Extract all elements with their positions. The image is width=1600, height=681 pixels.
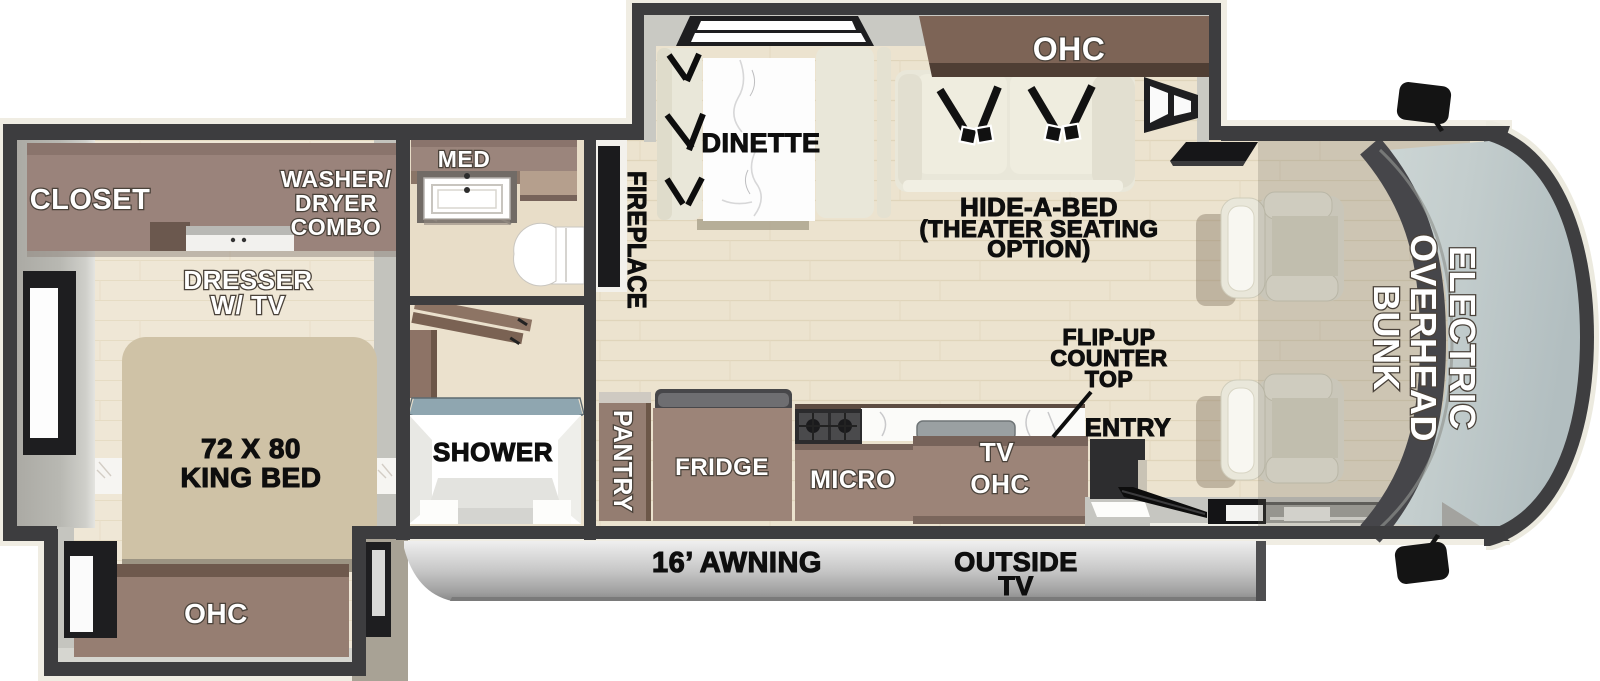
svg-text:DINETTE: DINETTE [701, 128, 820, 158]
svg-text:PANTRY: PANTRY [608, 410, 638, 512]
svg-text:MED: MED [438, 146, 491, 172]
svg-text:SHOWER: SHOWER [433, 437, 553, 467]
svg-text:72 X 80: 72 X 80 [201, 433, 301, 464]
svg-text:16’ AWNING: 16’ AWNING [652, 547, 822, 579]
svg-text:OHC: OHC [970, 469, 1029, 499]
svg-text:CLOSET: CLOSET [30, 184, 151, 216]
svg-text:OHC: OHC [184, 598, 248, 629]
svg-text:COMBO: COMBO [291, 214, 382, 240]
svg-text:FIREPLACE: FIREPLACE [622, 171, 652, 309]
svg-text:OVERHEAD: OVERHEAD [1403, 234, 1444, 442]
svg-text:MICRO: MICRO [810, 466, 896, 494]
svg-text:BUNK: BUNK [1366, 285, 1407, 391]
svg-text:ENTRY: ENTRY [1085, 414, 1171, 442]
svg-text:ELECTRIC: ELECTRIC [1442, 246, 1483, 430]
svg-text:WASHER/: WASHER/ [281, 166, 392, 192]
svg-text:TV: TV [998, 571, 1034, 601]
svg-text:OPTION): OPTION) [987, 236, 1091, 263]
svg-text:TV: TV [980, 437, 1014, 467]
svg-text:W/ TV: W/ TV [211, 290, 286, 320]
svg-text:FRIDGE: FRIDGE [675, 454, 769, 481]
svg-text:OHC: OHC [1033, 31, 1106, 67]
svg-text:TOP: TOP [1085, 366, 1133, 392]
svg-text:KING BED: KING BED [181, 462, 322, 493]
svg-text:DRYER: DRYER [295, 190, 377, 216]
